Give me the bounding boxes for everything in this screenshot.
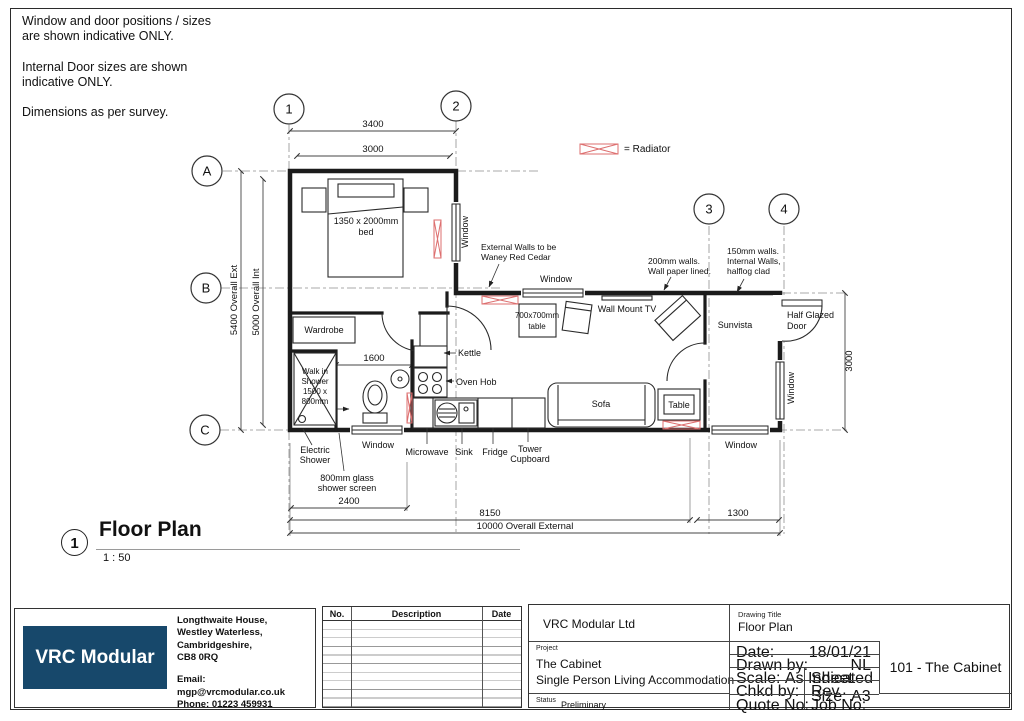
drawing-sheet: Window and door positions / sizes are sh… — [0, 0, 1024, 721]
address-line: Longthwaite House, — [177, 615, 315, 627]
address-line: Westley Waterless, — [177, 627, 315, 639]
corner-chair — [655, 296, 701, 341]
wardrobe-label: Wardrobe — [304, 325, 343, 335]
company-address: Longthwaite House, Westley Waterless, Ca… — [177, 615, 315, 711]
view-title-underline — [96, 549, 520, 550]
rev-col-description: Description — [351, 607, 482, 620]
oven-hob-label: Oven Hob — [456, 377, 497, 387]
company-email: Email: mgp@vrcmodular.co.uk — [177, 674, 315, 699]
view-scale: 1 : 50 — [103, 552, 131, 564]
tower-cupboard-label: Tower — [518, 444, 542, 454]
radiator-legend-label: = Radiator — [624, 144, 671, 155]
revision-table: No. Description Date — [322, 606, 522, 708]
window-label: Window — [362, 440, 395, 450]
dim-top-ext: 3400 — [362, 119, 383, 130]
rev-rows — [323, 621, 521, 708]
radiator-symbol — [580, 144, 618, 154]
window-label: Window — [786, 371, 796, 404]
150mm-walls-note: halflog clad — [727, 266, 770, 276]
address-line: Cambridgeshire, — [177, 640, 315, 652]
tv — [602, 296, 652, 300]
dim-shower: 2400 — [338, 496, 359, 507]
walk-in-shower-label: 1500 x — [303, 387, 327, 396]
walk-in-shower-label: Walk in — [302, 367, 328, 376]
walk-in-shower-label: Shower — [301, 377, 328, 386]
dim-left-ext: 5400 Overall Ext — [229, 265, 240, 336]
sunvista-label: Sunvista — [718, 320, 753, 330]
drawing-title-label: Drawing Title — [738, 610, 781, 619]
table-label: Table — [668, 400, 690, 410]
wall-mount-tv-label: Wall Mount TV — [598, 304, 657, 314]
dim-right: 3000 — [844, 350, 855, 371]
dim-left-int: 5000 Overall Int — [251, 268, 262, 335]
status-value: Preliminary — [561, 700, 606, 710]
dim-hall: 1600 — [363, 353, 384, 364]
quote-no-label: Quote No: — [736, 697, 809, 715]
microwave-label: Microwave — [405, 447, 448, 457]
dim-sunvista: 1300 — [727, 508, 748, 519]
half-glazed-door-leaf — [782, 300, 822, 306]
shower-screen-label: shower screen — [318, 483, 377, 493]
company-logo: VRC Modular Ltd — [23, 626, 167, 689]
rev-col-no: No. — [323, 607, 351, 620]
grid-col-1: 1 — [285, 102, 292, 117]
electric-shower-label: Electric — [300, 445, 330, 455]
table-700-label: 700x700mm — [515, 311, 559, 320]
grid-row-b: B — [202, 281, 211, 296]
job-no-label: Job No: — [811, 697, 866, 715]
view-title: Floor Plan — [99, 518, 202, 542]
window-label: Window — [725, 440, 758, 450]
sofa-label: Sofa — [592, 399, 611, 409]
shower-screen-label: 800mm glass — [320, 473, 374, 483]
title-block: VRC Modular Ltd Project The Cabinet Sing… — [528, 604, 1010, 708]
bed-label: bed — [358, 227, 373, 237]
project-label: Project — [536, 645, 558, 652]
dim-main: 8150 — [479, 508, 500, 519]
rev-col-date: Date — [482, 607, 521, 620]
external-walls-note: Waney Red Cedar — [481, 252, 551, 262]
table-700-label: table — [528, 322, 546, 331]
bed-label: 1350 x 2000mm — [334, 216, 399, 226]
company-phone: Phone: 01223 459931 — [177, 699, 315, 711]
tower-cupboard-label: Cupboard — [510, 454, 550, 464]
grid-col-4: 4 — [780, 202, 787, 217]
project-description: Single Person Living Accommodation — [536, 673, 734, 687]
walk-in-shower-label: 800mm — [302, 397, 329, 406]
kitchen-counter — [413, 346, 545, 428]
grid-col-2: 2 — [452, 99, 459, 114]
dim-overall: 10000 Overall External — [477, 521, 574, 532]
view-number-bubble: 1 — [61, 529, 88, 556]
sink-label: Sink — [455, 447, 473, 457]
fridge-label: Fridge — [482, 447, 508, 457]
150mm-walls-note: 150mm walls. — [727, 246, 779, 256]
grid-col-3: 3 — [705, 202, 712, 217]
window-label: Window — [460, 215, 470, 248]
drawing-title: Floor Plan — [738, 620, 793, 634]
half-glazed-door-label: Door — [787, 321, 807, 331]
kettle-label: Kettle — [458, 348, 481, 358]
annotations: External Walls to be Waney Red Cedar 200… — [481, 242, 781, 292]
toilet — [363, 381, 387, 423]
basin — [391, 370, 409, 388]
titleblock-company: VRC Modular Ltd — [543, 617, 635, 631]
drawing-number: 101 - The Cabinet — [879, 641, 1011, 694]
window-label: Window — [540, 274, 573, 284]
150mm-walls-note: Internal Walls, — [727, 256, 781, 266]
200mm-walls-note: 200mm walls. — [648, 256, 700, 266]
external-walls-note: External Walls to be — [481, 242, 557, 252]
half-glazed-door-label: Half Glazed — [787, 310, 834, 320]
floor-plan-drawing: 3400 3000 5400 Overall Ext 5000 Overall … — [0, 0, 1024, 604]
project-name: The Cabinet — [536, 657, 601, 671]
electric-shower-label: Shower — [300, 455, 331, 465]
200mm-walls-note: Wall paper lined. — [648, 266, 711, 276]
radiator-legend: = Radiator — [580, 144, 671, 155]
address-line: CB8 0RQ — [177, 652, 315, 664]
dim-top-int: 3000 — [362, 144, 383, 155]
status-label: Status — [536, 697, 556, 704]
company-box: VRC Modular Ltd Longthwaite House, Westl… — [14, 608, 316, 708]
grid-row-a: A — [203, 164, 212, 179]
grid-row-c: C — [200, 423, 209, 438]
